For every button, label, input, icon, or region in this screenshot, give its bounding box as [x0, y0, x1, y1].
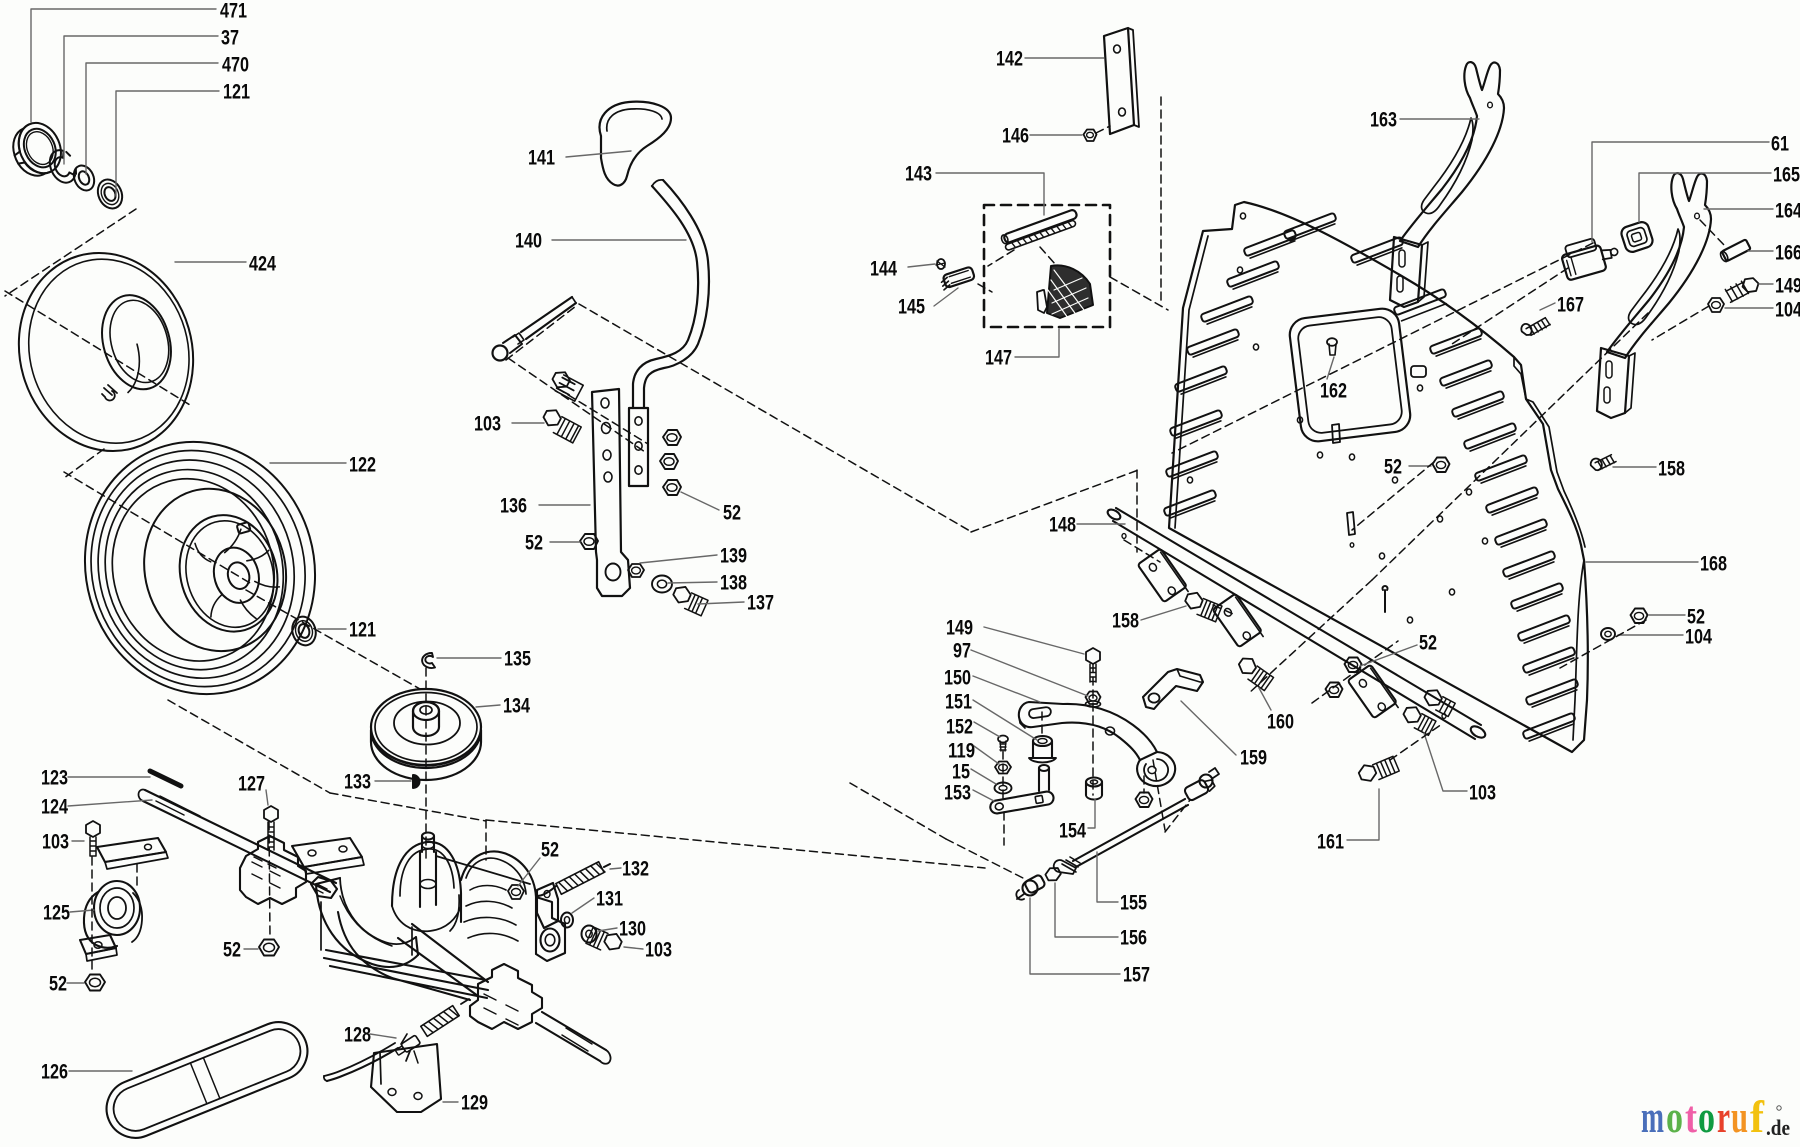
svg-text:103: 103	[474, 412, 501, 436]
svg-text:52: 52	[1384, 455, 1402, 479]
svg-text:132: 132	[622, 857, 649, 881]
svg-text:148: 148	[1049, 513, 1076, 537]
svg-text:166: 166	[1775, 241, 1800, 265]
svg-text:134: 134	[503, 694, 530, 718]
svg-text:146: 146	[1002, 124, 1029, 148]
svg-text:.de: .de	[1766, 1115, 1790, 1140]
svg-text:121: 121	[349, 618, 376, 642]
svg-text:122: 122	[349, 453, 376, 477]
svg-text:104: 104	[1775, 298, 1800, 322]
svg-text:165: 165	[1773, 163, 1800, 187]
svg-text:o: o	[1666, 1091, 1683, 1142]
svg-text:143: 143	[905, 162, 932, 186]
svg-text:123: 123	[41, 766, 68, 790]
svg-text:121: 121	[223, 80, 250, 104]
svg-text:52: 52	[525, 531, 543, 555]
svg-text:37: 37	[221, 26, 239, 50]
svg-text:r: r	[1717, 1091, 1730, 1142]
svg-text:168: 168	[1700, 552, 1727, 576]
svg-text:158: 158	[1658, 457, 1685, 481]
svg-text:61: 61	[1771, 132, 1789, 156]
svg-text:97: 97	[953, 639, 971, 663]
svg-text:o: o	[1698, 1091, 1715, 1142]
svg-text:103: 103	[42, 830, 69, 854]
svg-text:52: 52	[49, 972, 67, 996]
svg-text:126: 126	[41, 1060, 68, 1084]
svg-text:152: 152	[946, 715, 973, 739]
svg-text:149: 149	[946, 616, 973, 640]
svg-text:f: f	[1750, 1091, 1765, 1142]
svg-text:151: 151	[945, 690, 972, 714]
svg-text:104: 104	[1685, 625, 1712, 649]
svg-text:52: 52	[723, 501, 741, 525]
svg-text:158: 158	[1112, 609, 1139, 633]
svg-text:159: 159	[1240, 746, 1267, 770]
svg-text:147: 147	[985, 346, 1012, 370]
svg-text:138: 138	[720, 571, 747, 595]
svg-text:144: 144	[870, 257, 897, 281]
svg-text:161: 161	[1317, 830, 1344, 854]
svg-text:136: 136	[500, 494, 527, 518]
svg-text:141: 141	[528, 146, 555, 170]
svg-text:149: 149	[1775, 274, 1800, 298]
svg-text:137: 137	[747, 591, 774, 615]
svg-text:139: 139	[720, 544, 747, 568]
svg-text:142: 142	[996, 47, 1023, 71]
svg-text:u: u	[1731, 1091, 1748, 1142]
svg-text:470: 470	[222, 53, 249, 77]
svg-text:131: 131	[596, 887, 623, 911]
svg-text:153: 153	[944, 781, 971, 805]
svg-text:133: 133	[344, 770, 371, 794]
svg-text:103: 103	[1469, 781, 1496, 805]
svg-text:52: 52	[223, 938, 241, 962]
svg-text:52: 52	[541, 838, 559, 862]
svg-text:155: 155	[1120, 891, 1147, 915]
svg-text:m: m	[1641, 1091, 1664, 1142]
svg-text:140: 140	[515, 229, 542, 253]
svg-text:52: 52	[1419, 631, 1437, 655]
svg-text:t: t	[1685, 1091, 1698, 1142]
svg-text:145: 145	[898, 295, 925, 319]
svg-text:125: 125	[43, 901, 70, 925]
svg-text:424: 424	[249, 252, 276, 276]
svg-text:129: 129	[461, 1091, 488, 1115]
svg-text:124: 124	[41, 795, 68, 819]
svg-text:156: 156	[1120, 926, 1147, 950]
svg-text:157: 157	[1123, 963, 1150, 987]
svg-text:154: 154	[1059, 819, 1086, 843]
svg-text:150: 150	[944, 666, 971, 690]
svg-text:130: 130	[619, 917, 646, 941]
svg-text:167: 167	[1557, 293, 1584, 317]
svg-text:127: 127	[238, 772, 265, 796]
svg-text:135: 135	[504, 647, 531, 671]
svg-text:160: 160	[1267, 710, 1294, 734]
svg-text:128: 128	[344, 1023, 371, 1047]
svg-text:471: 471	[220, 0, 247, 23]
svg-text:103: 103	[645, 938, 672, 962]
svg-text:162: 162	[1320, 379, 1347, 403]
svg-text:163: 163	[1370, 108, 1397, 132]
svg-text:164: 164	[1775, 199, 1800, 223]
